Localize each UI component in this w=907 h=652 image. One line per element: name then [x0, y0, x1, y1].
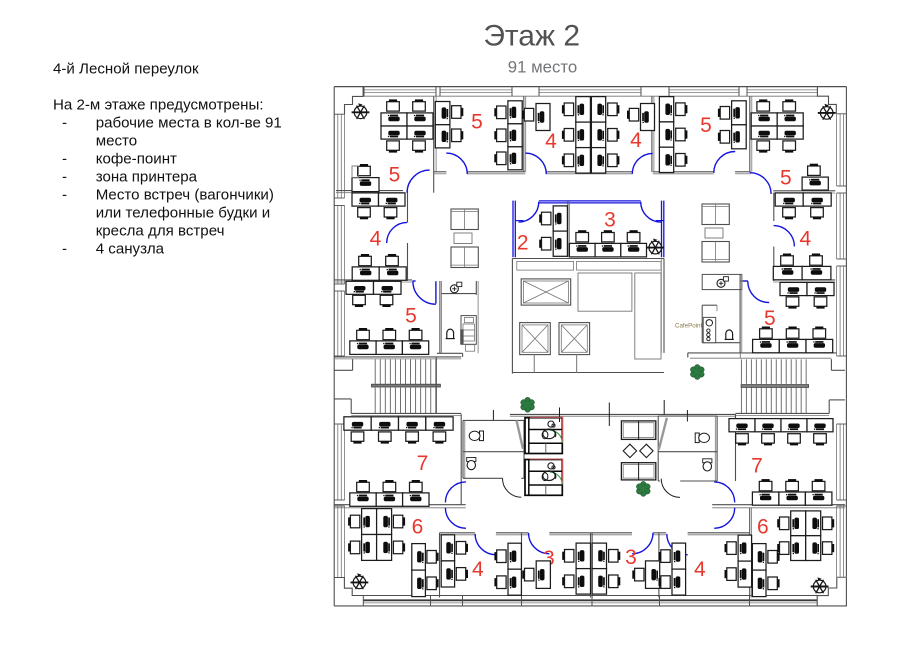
svg-text:4: 4 [694, 558, 706, 581]
svg-text:кофе-поинт: кофе-поинт [96, 151, 177, 168]
svg-text:4: 4 [472, 558, 484, 581]
svg-text:-: - [62, 169, 67, 186]
svg-text:4: 4 [370, 228, 382, 251]
svg-text:рабочие места в кол-ве 91: рабочие места в кол-ве 91 [96, 115, 282, 132]
svg-text:кресла для встреч: кресла для встреч [96, 223, 225, 240]
svg-text:или телефонные будки и: или телефонные будки и [96, 205, 270, 222]
svg-text:2: 2 [517, 232, 529, 255]
svg-text:4: 4 [545, 130, 557, 153]
svg-text:6: 6 [757, 516, 769, 539]
svg-text:Место встреч (вагончики): Место встреч (вагончики) [96, 187, 274, 204]
svg-text:4 санузла: 4 санузла [96, 241, 165, 258]
svg-text:4: 4 [799, 228, 811, 251]
svg-text:5: 5 [471, 111, 483, 134]
svg-text:-: - [62, 151, 67, 168]
svg-text:5: 5 [780, 167, 792, 190]
svg-text:91 место: 91 место [508, 57, 577, 76]
svg-text:3: 3 [604, 209, 616, 232]
svg-text:3: 3 [625, 546, 637, 569]
svg-text:-: - [62, 187, 67, 204]
svg-text:5: 5 [405, 305, 417, 328]
svg-text:-: - [62, 115, 67, 132]
svg-text:4-й Лесной переулок: 4-й Лесной переулок [53, 61, 199, 78]
svg-text:место: место [96, 133, 137, 150]
svg-text:CafePoint: CafePoint [675, 323, 702, 330]
svg-text:4: 4 [630, 129, 642, 152]
svg-text:5: 5 [389, 164, 401, 187]
svg-text:7: 7 [417, 452, 429, 475]
svg-text:зона принтера: зона принтера [96, 169, 198, 186]
svg-text:6: 6 [412, 516, 424, 539]
svg-text:7: 7 [751, 455, 763, 478]
svg-text:На 2-м этаже предусмотрены:: На 2-м этаже предусмотрены: [53, 97, 264, 114]
svg-text:-: - [62, 241, 67, 258]
svg-text:5: 5 [700, 114, 712, 137]
svg-text:Этаж 2: Этаж 2 [483, 19, 580, 52]
